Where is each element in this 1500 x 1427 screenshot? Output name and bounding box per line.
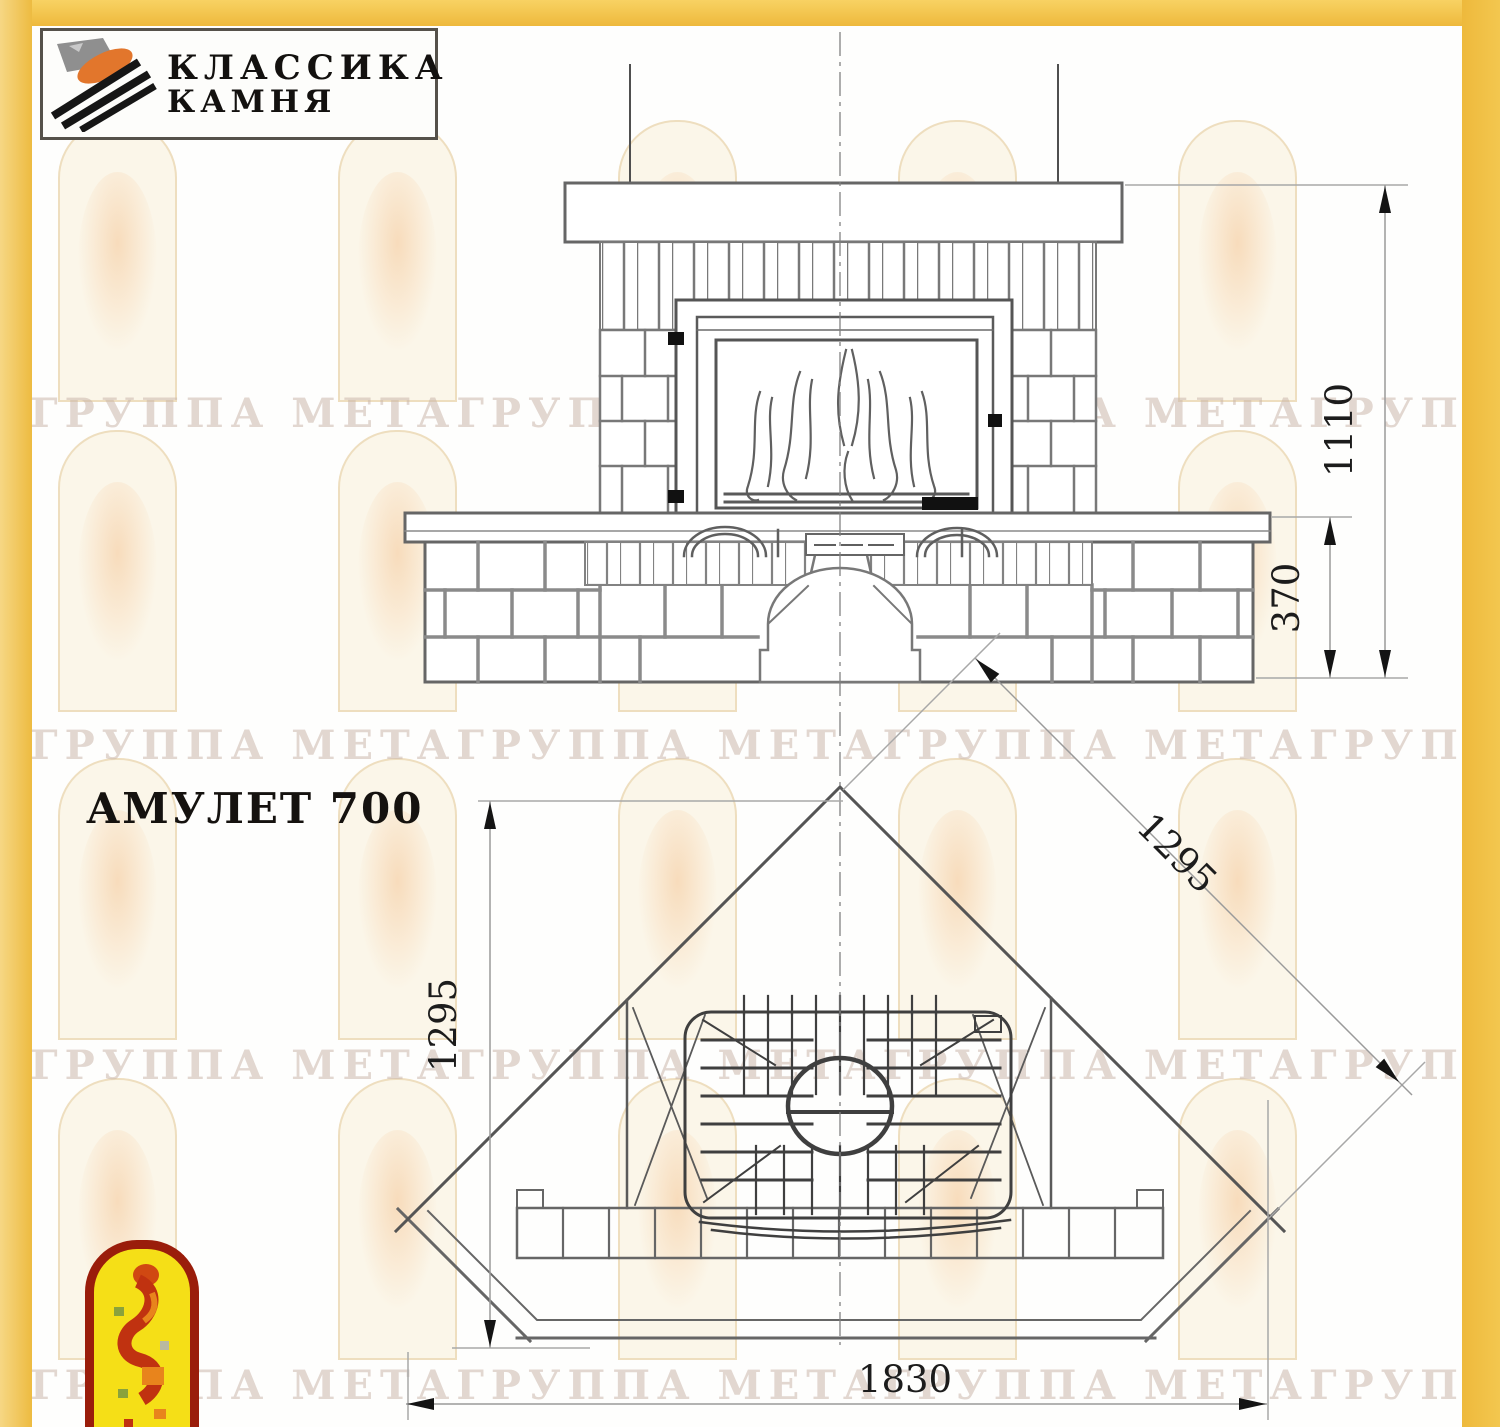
- company-logo: КЛАССИКА КАМНЯ: [40, 28, 438, 140]
- stone-base: [425, 542, 1253, 682]
- frame-border-left: [0, 0, 32, 1427]
- dim-label-370: 370: [1265, 563, 1308, 634]
- corner-emblem: [85, 1240, 199, 1427]
- frame-border-right: [1462, 0, 1500, 1427]
- dim-right-depth: 1295: [843, 633, 1425, 1219]
- logo-wordmark: КЛАССИКА КАМНЯ: [167, 50, 449, 119]
- stone-logo-icon: [49, 36, 161, 132]
- logo-line1: КЛАССИКА: [167, 50, 449, 86]
- dim-label-1110: 1110: [1318, 383, 1361, 477]
- door-hinge-top: [668, 332, 684, 345]
- plan-insert: [685, 996, 1011, 1239]
- door-handle: [922, 497, 978, 510]
- dim-plinth-height: 370: [1265, 517, 1352, 678]
- door-hinge-bottom: [668, 490, 684, 503]
- logo-line2: КАМНЯ: [167, 86, 449, 119]
- front-view: [405, 65, 1270, 682]
- chimney-anchor-lines: [630, 65, 1058, 183]
- door-latch: [988, 414, 1002, 427]
- dim-left-depth: 1295: [422, 801, 843, 1348]
- flame-figure-icon: [94, 1249, 190, 1427]
- dim-label-1295-right: 1295: [1128, 805, 1225, 902]
- dim-total-width: 1830: [406, 1100, 1268, 1420]
- frame-border-top: [0, 0, 1500, 26]
- dim-label-1295-left: 1295: [422, 978, 465, 1072]
- fireplace-technical-drawing: 1110 370 1295: [0, 0, 1500, 1427]
- model-title: АМУЛЕТ 700: [86, 784, 423, 833]
- mantel-shelf: [565, 183, 1122, 242]
- page: ГРУППА МЕТАГРУППА МЕТАГРУППА МЕТАГРУППА …: [0, 0, 1500, 1427]
- dim-label-1830: 1830: [858, 1358, 952, 1401]
